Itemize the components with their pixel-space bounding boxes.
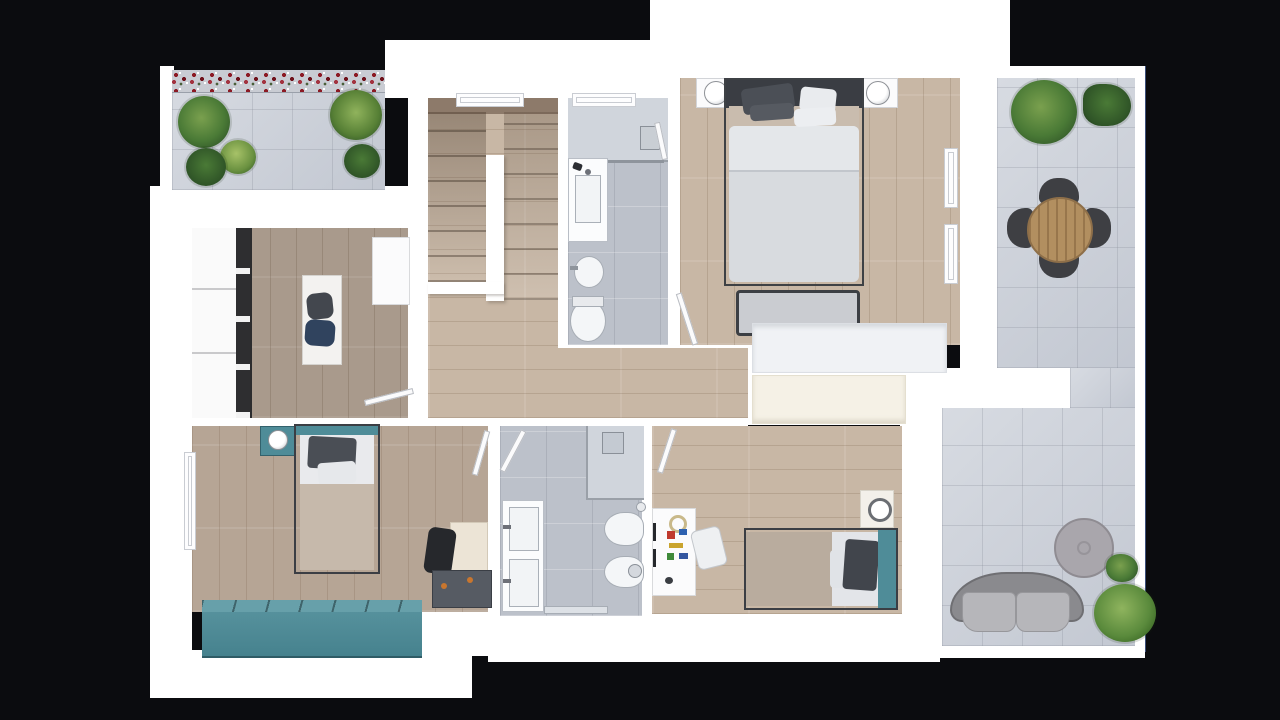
pillow-white-2 [794, 107, 837, 127]
wall-office-stair [408, 88, 428, 428]
terrace-right-top [997, 78, 1135, 368]
lamp-right [866, 81, 890, 105]
toilet [604, 512, 644, 546]
bathroom-bottom-door [500, 429, 527, 472]
double-bed [726, 80, 862, 284]
toy-item-dark [665, 577, 673, 584]
wardrobe-divider [192, 352, 236, 354]
single-bed [296, 426, 378, 572]
toy-block-green [667, 553, 674, 560]
sofa-cushion-left [962, 592, 1016, 632]
bed-blanket [300, 484, 374, 570]
office-door [364, 388, 414, 406]
bidet-faucet [570, 266, 578, 270]
bidet [574, 256, 604, 288]
wall-right-of-master [960, 55, 1000, 378]
wardrobe-shelving [192, 228, 252, 418]
toy-block-red [667, 531, 675, 539]
soap-item [572, 162, 583, 172]
bathroom-top-window [572, 93, 636, 107]
plant-right-dark [344, 144, 380, 178]
wall-bottom-terrace-left [900, 390, 942, 652]
kids-bedroom [652, 426, 902, 614]
bidet-faucet [628, 564, 642, 578]
kids-desk [652, 508, 696, 596]
round-dining-table [1027, 197, 1093, 263]
terrace-leaf-plant [1083, 84, 1131, 126]
bedroom-bottom-left [192, 426, 488, 612]
towel-rail [602, 160, 664, 163]
shower-drain [544, 606, 608, 614]
bed-headboard-teal [296, 426, 378, 435]
pillow-dark-2 [749, 102, 794, 121]
kids-blanket [746, 532, 832, 606]
toy-block-blue2 [679, 553, 688, 559]
toilet-tank [572, 296, 604, 307]
terrace-connector-tiles [1070, 368, 1135, 408]
round-coffee-table [1054, 518, 1114, 578]
sink-basin [575, 175, 601, 223]
wall-stair-bath [558, 90, 568, 348]
master-door [676, 292, 698, 345]
cabinet-handle [467, 577, 473, 583]
kids-door [657, 428, 677, 474]
office-dressing-room [192, 228, 408, 418]
kids-bed [746, 530, 896, 608]
stair-flight-left [428, 112, 486, 282]
toy-block-yellow [669, 543, 683, 548]
bedroom-lamp [268, 430, 288, 450]
kids-headboard-teal [878, 530, 896, 608]
wall-under-terrace [150, 186, 428, 232]
faucet [585, 169, 591, 175]
stair-divider-wall [486, 155, 504, 301]
table-center-detail [1077, 541, 1091, 555]
wall-top-right-mass [650, 0, 1010, 78]
master-wardrobe [752, 323, 947, 373]
bedroom-left-door [472, 430, 490, 476]
kids-pillow-dark [842, 539, 879, 591]
bathroom-top [568, 98, 668, 345]
desk-handle [653, 549, 656, 567]
sofa-cushion-right [1016, 592, 1070, 632]
plant-small-dark [186, 148, 226, 186]
office-cabinet [372, 237, 410, 305]
duvet [729, 126, 859, 282]
master-window-1 [944, 148, 958, 208]
teal-storage-bench [202, 600, 422, 658]
master-window-2 [944, 224, 958, 284]
office-chair-navy [304, 319, 336, 347]
wall-top-band [385, 40, 680, 98]
outdoor-sofa [950, 572, 1080, 634]
stair-flight-right [504, 112, 558, 300]
desk-handle [653, 523, 656, 541]
terrace-bush [1011, 80, 1077, 144]
master-bedroom [680, 78, 960, 345]
bathroom-bottom [500, 426, 642, 616]
duvet-fold [729, 126, 859, 172]
plant-bush [178, 96, 230, 148]
wardrobe-frame [236, 228, 250, 418]
hallway [428, 348, 748, 418]
wall-terrace-right-bottom [940, 644, 1145, 658]
terrace-plant-big [1094, 584, 1156, 642]
terrace-right-bottom [942, 408, 1135, 646]
double-vanity [502, 500, 544, 612]
wall-terrace-right-top [995, 66, 1135, 78]
bedroom-left-window [184, 452, 196, 550]
bed-pillow-white [317, 461, 356, 486]
floor-plan-stage [0, 0, 1280, 720]
wardrobe-divider [192, 288, 236, 290]
terrace-top-left [172, 72, 385, 190]
toilet-button [636, 502, 646, 512]
wall-bottom-mid-band [488, 612, 940, 662]
drawer-cabinet [432, 570, 492, 608]
plant-fern [330, 90, 382, 140]
sink-basin-2 [509, 559, 539, 607]
kids-lamp [868, 498, 892, 522]
faucet [503, 525, 511, 529]
sink-basin-1 [509, 507, 539, 551]
vanity-sink [568, 158, 608, 242]
toy-block-blue [679, 529, 687, 535]
office-desk [302, 275, 342, 365]
stair-window [456, 93, 524, 107]
bench-slats [202, 600, 422, 612]
lamp-left [704, 81, 728, 105]
office-chair-dark [306, 292, 335, 321]
shower-fixture [602, 432, 624, 454]
terrace-plant-small [1106, 554, 1138, 582]
faucet [503, 579, 511, 583]
stair-stub-wall [428, 282, 504, 294]
cabinet-handle [441, 583, 447, 589]
kids-wardrobe-cream [752, 375, 906, 424]
